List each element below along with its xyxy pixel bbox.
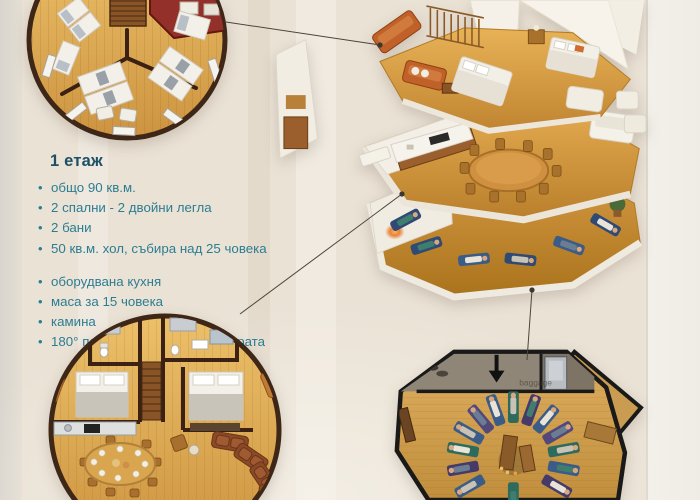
yoga-studio-plan: storage baggage <box>392 342 692 500</box>
baggage-label: baggage <box>519 377 552 387</box>
floor-features-list-1: общо 90 кв.м. 2 спални - 2 двойни легла … <box>36 178 298 259</box>
double-bed <box>189 372 243 420</box>
nightstand <box>528 30 544 44</box>
feature-item: 2 спални - 2 двойни легла <box>36 198 298 218</box>
feature-item: оборудвана кухня <box>36 272 298 292</box>
baggage-area: baggage <box>401 354 595 392</box>
side-table <box>189 445 199 455</box>
second-floor-plan <box>24 0 230 142</box>
double-bed <box>76 372 128 417</box>
first-floor-plan <box>44 312 287 500</box>
feature-item: 50 кв.м. хол, събира над 25 човека <box>36 239 298 259</box>
left-wing <box>276 40 318 159</box>
infographic-canvas: 1 етаж общо 90 кв.м. 2 спални - 2 двойни… <box>0 0 700 500</box>
floor-title: 1 етаж <box>50 152 298 171</box>
feature-item: общо 90 кв.м. <box>36 178 298 198</box>
kitchen-counter <box>54 422 136 435</box>
house-cutaway-3d <box>276 0 662 312</box>
staircase <box>110 0 146 26</box>
feature-item: 2 бани <box>36 218 298 238</box>
feature-item: маса за 15 човека <box>36 292 298 312</box>
bed-bench <box>190 423 240 431</box>
staircase <box>142 362 161 420</box>
loveseat <box>566 86 604 113</box>
